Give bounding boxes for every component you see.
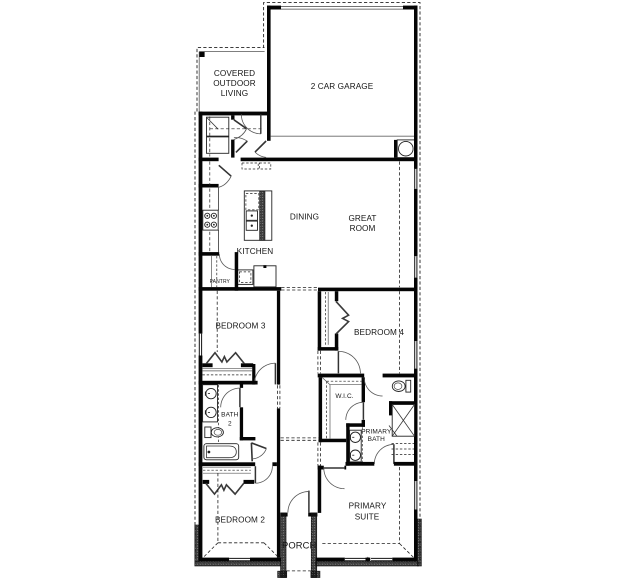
svg-text:PORCH: PORCH [282,539,316,550]
svg-text:BEDROOM 3: BEDROOM 3 [215,322,265,331]
svg-text:PRIMARY: PRIMARY [361,429,392,436]
svg-text:KITCHEN: KITCHEN [237,247,274,256]
svg-text:2: 2 [228,421,232,428]
svg-text:BATH: BATH [368,436,385,443]
svg-text:DINING: DINING [290,213,319,222]
svg-text:OUTDOOR: OUTDOOR [213,79,256,88]
svg-text:ROOM: ROOM [350,224,376,233]
svg-text:PRIMARY: PRIMARY [349,502,387,511]
svg-text:COVERED: COVERED [214,69,255,78]
svg-text:BATH: BATH [221,412,238,419]
svg-text:GREAT: GREAT [348,214,376,223]
svg-text:W.I.C.: W.I.C. [335,393,353,400]
svg-text:SUITE: SUITE [355,513,380,522]
svg-text:BEDROOM 4: BEDROOM 4 [354,328,404,337]
svg-text:BEDROOM 2: BEDROOM 2 [215,516,265,525]
svg-text:LIVING: LIVING [221,89,248,98]
svg-text:PANTRY: PANTRY [210,279,231,285]
svg-text:2 CAR GARAGE: 2 CAR GARAGE [311,82,374,91]
